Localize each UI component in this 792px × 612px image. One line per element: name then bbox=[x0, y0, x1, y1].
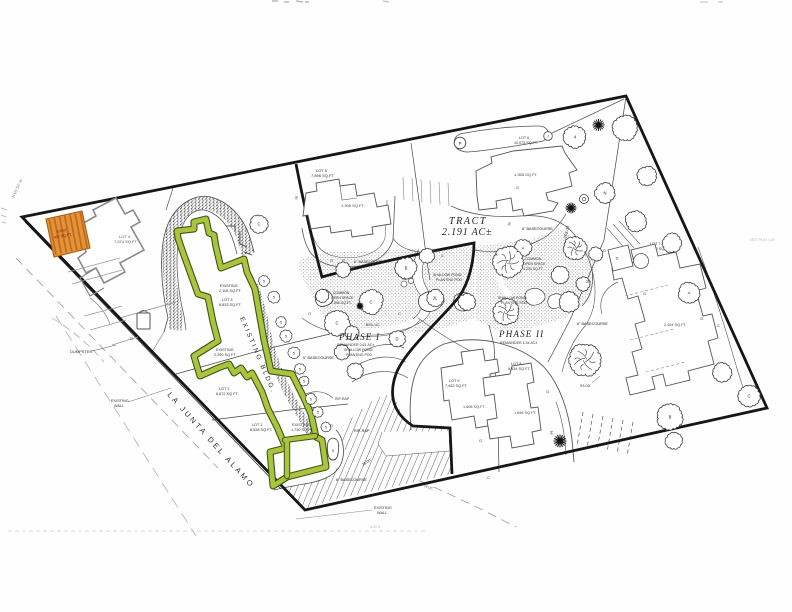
svg-text:7,574 SQ.FT.: 7,574 SQ.FT. bbox=[114, 239, 138, 244]
svg-text:DUMPSTER: DUMPSTER bbox=[70, 349, 93, 354]
svg-text:20': 20' bbox=[586, 280, 591, 284]
svg-text:8,528 SQ.FT.: 8,528 SQ.FT. bbox=[250, 428, 272, 432]
svg-text:P: P bbox=[459, 141, 462, 146]
svg-text:7: 7 bbox=[547, 135, 549, 139]
svg-text:JL: JL bbox=[433, 296, 438, 301]
svg-text:PHASE II: PHASE II bbox=[498, 329, 544, 339]
svg-text:B/SL.UC: B/SL.UC bbox=[366, 323, 380, 327]
svg-text:PLANTING POD: PLANTING POD bbox=[346, 353, 373, 357]
svg-text:OPEN SPACE: OPEN SPACE bbox=[331, 296, 354, 300]
svg-text:2,108 SQ.FT.: 2,108 SQ.FT. bbox=[219, 289, 241, 293]
svg-text:6" BASECOURSE: 6" BASECOURSE bbox=[577, 322, 608, 326]
svg-text:5: 5 bbox=[263, 280, 265, 284]
svg-text:G: G bbox=[700, 316, 703, 321]
svg-text:10,075 SQ.FT.: 10,075 SQ.FT. bbox=[514, 141, 538, 145]
svg-text:PLANTING POD: PLANTING POD bbox=[501, 301, 528, 305]
svg-text:C: C bbox=[747, 394, 750, 399]
svg-text:6,934 SQ.FT.: 6,934 SQ.FT. bbox=[508, 367, 530, 371]
svg-text:C: C bbox=[257, 222, 260, 227]
svg-text:WALL: WALL bbox=[114, 404, 124, 408]
svg-text:SHALLOW POND/: SHALLOW POND/ bbox=[433, 273, 462, 277]
svg-text:2.191 AC±: 2.191 AC± bbox=[442, 227, 492, 238]
svg-text:5: 5 bbox=[310, 398, 312, 402]
svg-text:LOT 8: LOT 8 bbox=[511, 362, 521, 366]
svg-text:G: G bbox=[330, 258, 333, 263]
svg-text:36: 36 bbox=[507, 222, 512, 227]
svg-text:7,896 SQ.FT.: 7,896 SQ.FT. bbox=[311, 173, 335, 178]
svg-text:LOT 6: LOT 6 bbox=[519, 136, 529, 140]
svg-text:WALL: WALL bbox=[377, 511, 387, 515]
svg-text:G: G bbox=[130, 336, 133, 341]
svg-text:REMAINDER 0.61 AC±: REMAINDER 0.61 AC± bbox=[337, 343, 374, 347]
svg-text:93.00': 93.00' bbox=[580, 383, 591, 388]
svg-text:EXISTING: EXISTING bbox=[292, 423, 310, 427]
svg-text:G: G bbox=[457, 292, 460, 297]
svg-text:G: G bbox=[516, 185, 519, 190]
svg-text:EXISTING: EXISTING bbox=[216, 348, 234, 352]
svg-text:C: C bbox=[369, 300, 372, 305]
svg-text:SHALLOW POND/: SHALLOW POND/ bbox=[498, 296, 527, 300]
svg-text:4,230 SQ.FT.: 4,230 SQ.FT. bbox=[523, 267, 544, 271]
svg-text:G: G bbox=[308, 311, 311, 316]
svg-text:G: G bbox=[643, 291, 646, 296]
svg-text:1,608 SQ.FT.: 1,608 SQ.FT. bbox=[463, 405, 485, 409]
svg-text:G: G bbox=[546, 389, 549, 394]
svg-text:A: A bbox=[522, 246, 525, 251]
svg-text:LOT 3: LOT 3 bbox=[222, 298, 232, 302]
svg-text:5: 5 bbox=[332, 449, 334, 453]
svg-text:4-22-9: 4-22-9 bbox=[370, 525, 380, 529]
svg-text:B: B bbox=[669, 415, 672, 420]
svg-text:D: D bbox=[395, 337, 398, 342]
svg-text:REMAINDER 1.34 AC±: REMAINDER 1.34 AC± bbox=[500, 341, 537, 345]
svg-text:LOT 2: LOT 2 bbox=[219, 387, 229, 391]
svg-text:5: 5 bbox=[280, 321, 282, 325]
svg-text:8,833 SQ.FT.: 8,833 SQ.FT. bbox=[219, 303, 241, 307]
svg-text:7,432 SQ.FT.: 7,432 SQ.FT. bbox=[445, 384, 467, 388]
svg-text:G: G bbox=[330, 423, 333, 428]
svg-text:G: G bbox=[479, 438, 482, 443]
svg-text:C: C bbox=[398, 311, 401, 316]
svg-text:SHALLOW POND/: SHALLOW POND/ bbox=[344, 348, 373, 352]
svg-text:NOT PLAT 1-M: NOT PLAT 1-M bbox=[750, 238, 774, 242]
svg-text:5: 5 bbox=[325, 426, 327, 430]
svg-text:5: 5 bbox=[285, 335, 287, 339]
svg-text:1,395 SQ.FT.: 1,395 SQ.FT. bbox=[341, 203, 365, 208]
svg-text:RIP-RAP: RIP-RAP bbox=[354, 429, 370, 433]
svg-text:PHASE I: PHASE I bbox=[338, 332, 380, 342]
svg-text:5: 5 bbox=[273, 296, 275, 300]
svg-text:6" BASECOURSE: 6" BASECOURSE bbox=[336, 478, 367, 482]
svg-text:B: B bbox=[405, 266, 408, 271]
svg-text:N: N bbox=[603, 191, 606, 196]
svg-text:PLANTING POD: PLANTING POD bbox=[436, 278, 463, 282]
svg-text:C: C bbox=[717, 323, 720, 328]
svg-text:EXISTING: EXISTING bbox=[111, 399, 129, 403]
svg-text:A: A bbox=[688, 291, 691, 296]
svg-text:1,730 SQ.FT.: 1,730 SQ.FT. bbox=[291, 428, 313, 432]
svg-text:6" BASECOURSE: 6" BASECOURSE bbox=[303, 356, 334, 360]
svg-text:2,404 SQ.FT.: 2,404 SQ.FT. bbox=[664, 323, 686, 327]
svg-text:G: G bbox=[603, 248, 606, 253]
svg-text:C: C bbox=[487, 475, 490, 480]
svg-text:TRACT: TRACT bbox=[449, 216, 487, 227]
svg-text:5: 5 bbox=[317, 411, 319, 415]
svg-text:6" BASECOURSE: 6" BASECOURSE bbox=[522, 227, 553, 231]
svg-text:5: 5 bbox=[299, 368, 301, 372]
svg-text:1,365 SQ.FT.: 1,365 SQ.FT. bbox=[514, 172, 538, 177]
svg-text:COMMON: COMMON bbox=[333, 291, 350, 295]
svg-text:C: C bbox=[335, 321, 338, 326]
svg-text:5: 5 bbox=[303, 380, 305, 384]
svg-text:COMMON: COMMON bbox=[525, 257, 542, 261]
svg-text:RIP-RAP: RIP-RAP bbox=[335, 397, 350, 401]
svg-text:2,290 SQ.FT.: 2,290 SQ.FT. bbox=[214, 353, 236, 357]
svg-text:EXISTING: EXISTING bbox=[374, 506, 392, 510]
svg-text:LOT 9: LOT 9 bbox=[449, 379, 459, 383]
svg-text:6" BASECOURSE: 6" BASECOURSE bbox=[354, 260, 385, 264]
svg-text:6,672 SQ.FT.: 6,672 SQ.FT. bbox=[216, 392, 238, 396]
svg-text:7,596 SQ.FT.: 7,596 SQ.FT. bbox=[331, 301, 352, 305]
svg-text:EXISTING: EXISTING bbox=[220, 284, 238, 288]
svg-text:5: 5 bbox=[293, 352, 295, 356]
svg-text:1,696 SQ.FT.: 1,696 SQ.FT. bbox=[514, 411, 536, 415]
svg-text:OPEN SPACE: OPEN SPACE bbox=[523, 262, 546, 266]
svg-text:C: C bbox=[441, 253, 444, 258]
svg-text:LOT 1: LOT 1 bbox=[252, 423, 262, 427]
